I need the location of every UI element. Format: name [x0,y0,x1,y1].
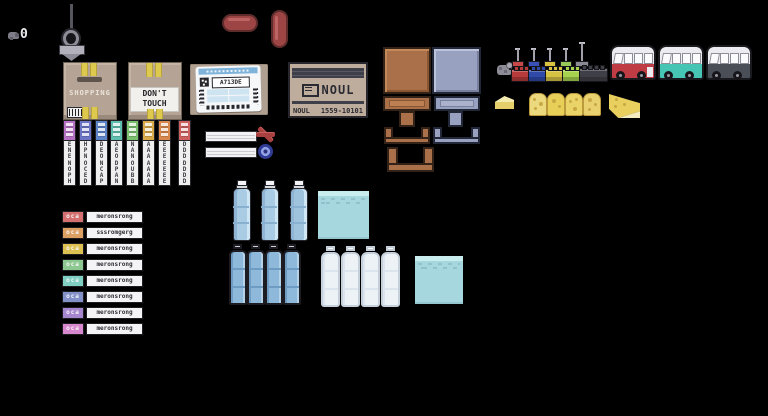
cheese-lump-sprite [529,93,547,116]
noul-box-sprite: NOUL NOUL 1559-10101 [288,62,368,118]
white-bottle [381,246,400,307]
wheel [685,71,694,80]
strip-cap [126,120,139,141]
cheese-lump-sprite [547,93,565,116]
tag-label: meronsrong [86,211,143,223]
pack-bottle [283,244,301,305]
tag-label: meronsrong [86,275,143,287]
tape [82,107,89,119]
steel-bracket-sprite [433,127,480,144]
strip-sprite-8: D D D D D D D [178,120,191,186]
tag-row: oca meronsrong [62,259,143,271]
tape [146,63,153,77]
tag-row: oca meronsrong [62,243,143,255]
pack-bottle [229,244,247,305]
tape [156,109,163,119]
tag-label: meronsrong [86,259,143,271]
tag-label: meronsrong [86,291,143,303]
white-bottle [361,246,380,307]
label-footer-glyphs [206,104,250,109]
tape [81,63,88,76]
strip-letters: N A N O U B B [126,141,139,186]
strip-letters: D E O N C A P [95,141,108,186]
noul-footer: NOUL 1559-10101 [290,105,366,116]
tag-badge: oca [62,323,84,335]
steel-stem-sprite [448,111,463,127]
strip-letters: H P N O C E D [79,141,92,186]
shopping-box-sprite: SHOPPING [63,62,117,120]
noul-top-band [292,68,364,78]
water-bottle-sprite [289,180,307,240]
brick-yellow-sprite [545,69,563,82]
tag-label: meronsrong [86,243,143,255]
tape [90,63,97,76]
tag-row: oca sssromgerg [62,227,143,239]
pole-red-sprite [512,43,524,65]
sprite-sheet: 0 SHOPPING DON'T TOUCH [0,0,768,416]
shovel-sprite [59,4,85,62]
ice-block-sprite [415,256,463,304]
mouse-patch [499,67,502,70]
dont-touch-box-sprite: DON'T TOUCH [128,62,182,120]
tag-row: oca meronsrong [62,323,143,335]
noul-logo-text: NOUL [322,83,355,97]
steel-bar-sprite [434,96,480,111]
sausage-horizontal-sprite [222,14,258,32]
bottle-pack-sprite [229,244,301,305]
strip-cap [158,120,171,141]
shipping-label: A713DE [195,65,261,113]
o-mark-icon [258,144,273,159]
strip-cap [95,120,108,141]
ice-block-sprite [318,191,369,239]
tag-label: sssromgerg [86,227,143,239]
tracking-code: A713DE [212,76,250,88]
paper-strip-sprite [205,147,257,158]
bus-grey-sprite [706,45,752,88]
sausage-highlight [228,18,250,21]
wheel [712,71,721,80]
tag-row: oca meronsrong [62,211,143,223]
brown-bracket-sprite [384,127,430,144]
strip-letters: E N E N O P H [63,141,76,186]
noul-footer-name: NOUL [293,107,310,115]
tag-badge: oca [62,243,84,255]
brown-stem-sprite [399,111,415,127]
tag-badge: oca [62,291,84,303]
brown-block-sprite [383,47,431,94]
white-bottle [321,246,340,307]
strip-sprite-5: N A N O U B B [126,120,139,186]
tape [91,107,98,119]
strip-sprite-7: E E E E E E E [158,120,171,186]
pack-bottle [247,244,265,305]
box-handle [77,77,102,82]
barcode-left [199,90,204,106]
pole-yellow-sprite [544,43,556,65]
strip-sprite-1: E N E N O P H [63,120,76,186]
steel-block-sprite [432,47,481,94]
dont-touch-line2: TOUCH [142,99,166,108]
brown-bar-sprite [383,96,431,111]
wheel [616,71,625,80]
cheese-lump-sprite [565,93,583,116]
shovel-blade [59,45,85,55]
pole-green-sprite [560,43,572,65]
pole-grey-sprite [575,38,589,65]
barcode-right [253,88,258,104]
white-bottle [341,246,360,307]
brick-red-sprite [511,69,529,82]
tape [147,109,154,119]
strip-sprite-3: D E O N C A P [95,120,108,186]
tag-row: oca meronsrong [62,275,143,287]
cheese-small-wedge-sprite [495,96,514,109]
shopping-box-label: SHOPPING [64,89,116,97]
tag-row: oca meronsrong [62,291,143,303]
brick-green-sprite [562,69,580,82]
noul-logo: NOUL [290,80,366,100]
strip-cap [79,120,92,141]
pole-blue-sprite [528,43,540,65]
dont-touch-label: DON'T TOUCH [130,87,179,112]
cheese-lump-sprite [583,93,601,116]
strip-sprite-6: A A A A A A A [142,120,155,186]
label-header [198,67,257,75]
strip-sprite-4: A E O D P A N [110,120,123,186]
strip-cap [178,120,191,141]
sausage-highlight [275,16,278,40]
tag-badge: oca [62,307,84,319]
tape [155,63,162,77]
strip-cap [63,120,76,141]
hud-counter: 0 [20,27,28,42]
tag-row: oca meronsrong [62,307,143,319]
strip-letters: A E O D P A N [110,141,123,186]
bus-red-sprite [610,45,656,88]
wheel [637,71,646,80]
mouse-ear [15,33,19,37]
dont-touch-line1: DON'T [142,89,166,98]
wheel [664,71,673,80]
noul-divider [292,101,364,104]
tag-badge: oca [62,259,84,271]
strip-letters: A A A A A A A [142,141,155,186]
tag-badge: oca [62,211,84,223]
strip-letters: D D D D D D D [178,141,191,186]
paper-strip-sprite [205,131,257,142]
pack-bottle [265,244,283,305]
strip-sprite-2: H P N O C E D [79,120,92,186]
noul-serial: 1559-10101 [321,107,363,115]
tag-badge: oca [62,275,84,287]
shovel-handle [70,4,73,32]
brick-dark-long-sprite [579,68,608,82]
x-mark-icon [257,126,274,142]
bus-teal-sprite [658,45,704,88]
brown-bracket-large-sprite [387,147,434,172]
tag-label: meronsrong [86,323,143,335]
tag-badge: oca [62,227,84,239]
label-table [207,88,249,102]
white-bottle-row-sprite [321,246,400,307]
wheel [733,71,742,80]
mouse-spot [10,37,13,40]
sausage-vertical-sprite [271,10,288,48]
strip-cap [110,120,123,141]
qr-code-icon [200,78,209,87]
water-bottle-sprite [260,180,278,240]
brick-blue-sprite [528,69,546,82]
water-bottle-sprite [232,180,250,240]
mouse-patch [504,70,507,73]
shipping-box-sprite: A713DE [190,64,268,115]
tag-label: meronsrong [86,307,143,319]
strip-cap [142,120,155,141]
noul-logo-icon [302,84,319,97]
shovel-tip [62,54,81,61]
strip-letters: E E E E E E E [158,141,171,186]
cheese-big-wedge-sprite [609,94,640,118]
